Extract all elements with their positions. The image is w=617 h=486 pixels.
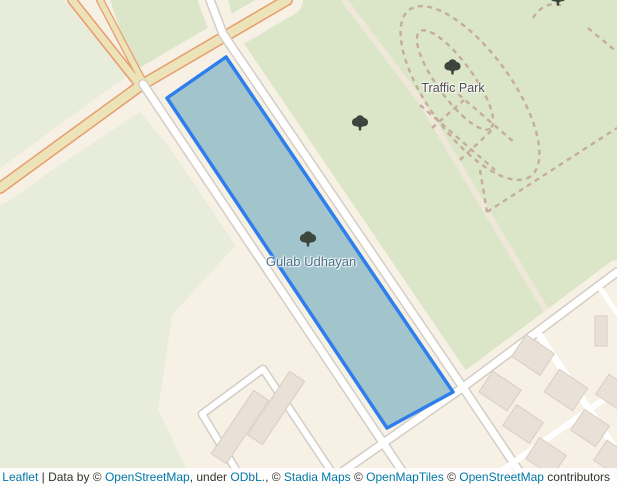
odbl-link[interactable]: ODbL. [230,470,265,484]
map-canvas[interactable] [0,0,617,486]
attribution-data-by: Data by © [48,470,105,484]
stadia-maps-link[interactable]: Stadia Maps [284,470,351,484]
building [595,316,607,346]
openstreetmap-link[interactable]: OpenStreetMap [105,470,190,484]
attribution-separator: | [38,470,48,484]
openmaptiles-link[interactable]: OpenMapTiles [366,470,444,484]
leaflet-link[interactable]: Leaflet [2,470,38,484]
map-viewport: Traffic Park Gulab Udhayan Leaflet | Dat… [0,0,617,486]
attribution-contributors: contributors [544,470,610,484]
openstreetmap-link-2[interactable]: OpenStreetMap [459,470,544,484]
label-traffic-park: Traffic Park [421,81,484,95]
attribution-bar: Leaflet | Data by © OpenStreetMap, under… [0,468,617,486]
label-gulab-udhayan: Gulab Udhayan [266,254,356,269]
